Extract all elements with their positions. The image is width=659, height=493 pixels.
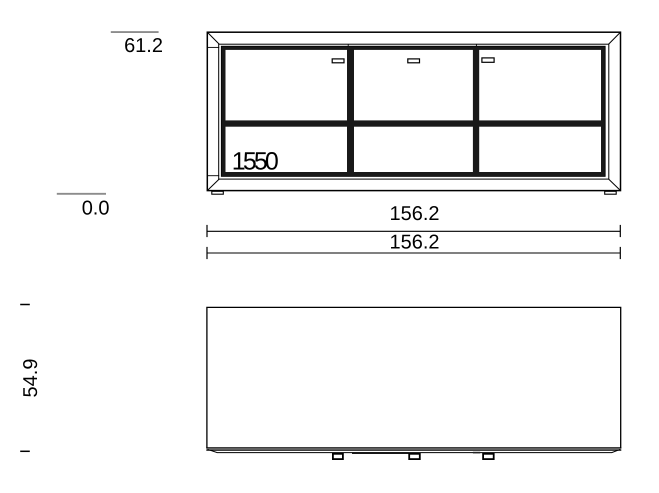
svg-text:0.0: 0.0 <box>82 197 110 219</box>
svg-text:61.2: 61.2 <box>124 35 163 57</box>
svg-text:54.9: 54.9 <box>20 359 42 398</box>
svg-text:1550: 1550 <box>232 147 279 175</box>
svg-text:156.2: 156.2 <box>389 232 439 254</box>
svg-text:156.2: 156.2 <box>389 203 439 225</box>
